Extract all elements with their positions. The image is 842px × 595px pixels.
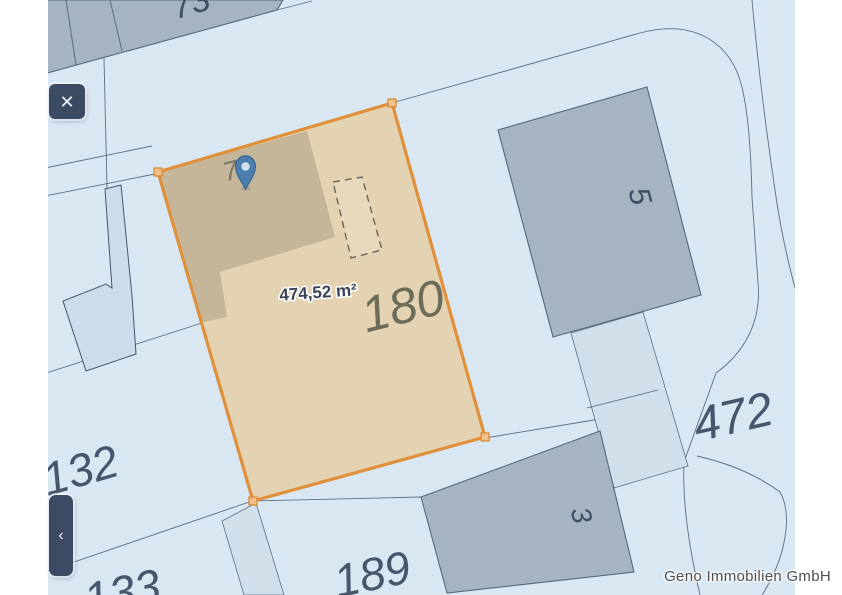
close-icon: ✕ bbox=[59, 93, 74, 111]
chevron-left-icon: ‹ bbox=[58, 528, 63, 544]
cadastral-map: 73 132 133 189 472 5 3 180 7 474,52 m² bbox=[0, 0, 842, 595]
parcel-vertex-marker[interactable] bbox=[154, 168, 162, 176]
parcel-vertex-marker[interactable] bbox=[481, 433, 489, 441]
collapse-panel-button[interactable]: ‹ bbox=[49, 495, 73, 576]
close-button[interactable]: ✕ bbox=[49, 84, 85, 119]
watermark: Geno Immobilien GmbH bbox=[664, 568, 831, 585]
parcel-vertex-marker[interactable] bbox=[249, 497, 257, 505]
map-widget: 73 132 133 189 472 5 3 180 7 474,52 m² ✕… bbox=[0, 0, 842, 595]
parcel-vertex-marker[interactable] bbox=[388, 99, 396, 107]
pin-center-dot bbox=[241, 162, 249, 170]
